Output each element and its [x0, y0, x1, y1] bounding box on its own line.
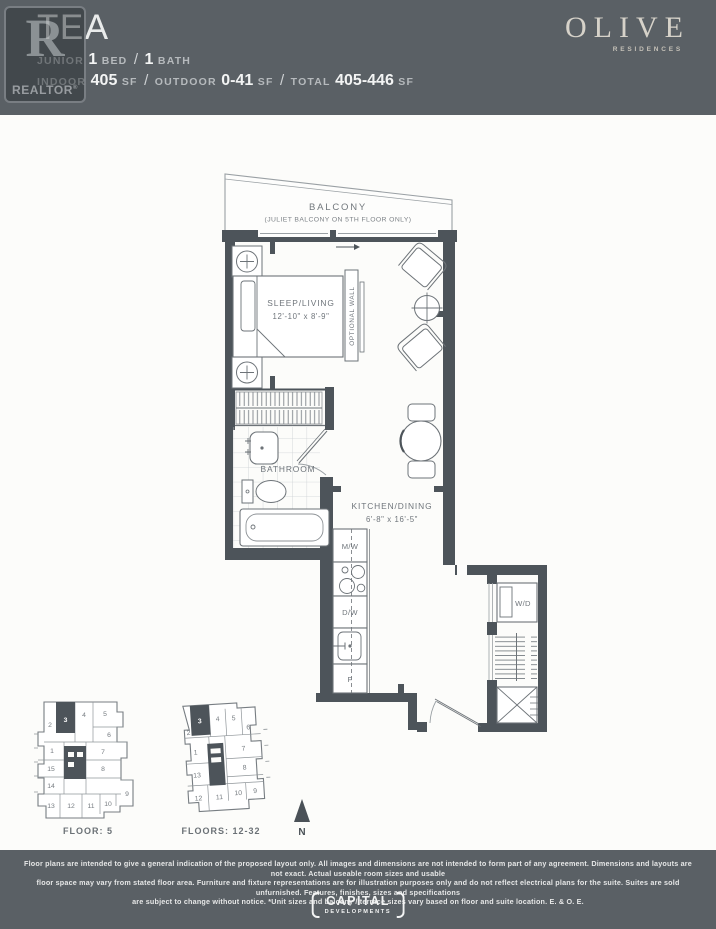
unit-number: 6	[107, 732, 111, 739]
outdoor-value: 0-41	[221, 72, 253, 89]
bedroom-closet	[235, 390, 325, 426]
unit-number-highlighted: 3	[64, 717, 68, 724]
logo-bracket-right-icon	[396, 892, 404, 918]
logo-capital: CAPITAL	[326, 895, 390, 908]
unit-number: 10	[104, 801, 112, 808]
spec-areas: INDOOR 405 SF / OUTDOOR 0-41 SF / TOTAL …	[37, 72, 414, 90]
header: R REALTOR® TEA JUNIOR 1 BED / 1 BATH IND…	[0, 0, 716, 115]
realtor-watermark-label: REALTOR®	[12, 83, 78, 97]
bath-count: 1	[145, 51, 154, 68]
unit-number: 8	[243, 765, 247, 772]
sleep-living-dims: 12'-10" x 8'-9"	[273, 312, 330, 321]
realtor-text: REALTOR	[12, 83, 73, 97]
slider-arrow-icon	[354, 244, 360, 250]
unit-number-highlighted: 3	[198, 718, 202, 725]
unit-number: 15	[47, 766, 55, 773]
keyplan-floors-12-32: 2 3 4 5 6 1 7 13 8 12 11 10 9 FLOORS: 12…	[181, 701, 272, 836]
toilet-bowl	[256, 481, 286, 503]
unit-number: 12	[67, 803, 75, 810]
fridge-label: F	[348, 675, 353, 684]
outdoor-label: OUTDOOR	[155, 76, 217, 88]
brand-name: OLIVE	[565, 13, 690, 43]
unit-number: 9	[125, 791, 129, 798]
floor-plan-svg: BALCONY (JULIET BALCONY ON 5TH FLOOR ONL…	[0, 115, 716, 850]
unit-number: 11	[87, 803, 94, 810]
dishwasher-label: D/W	[342, 608, 358, 617]
armchair-icon	[398, 241, 448, 290]
bed-count: 1	[88, 51, 97, 68]
kitchen-dims: 6'-8" x 16'-5"	[366, 515, 418, 524]
indoor-unit: SF	[122, 76, 138, 88]
logo-bracket-left-icon	[312, 892, 320, 918]
capital-developments-logo: CAPITAL DEVELOPMENTS	[312, 892, 405, 918]
pillow	[241, 281, 255, 331]
disclaimer-line: Floor plans are intended to give a gener…	[18, 859, 698, 878]
total-label: TOTAL	[291, 76, 331, 88]
optional-wall-label: OPTIONAL WALL	[349, 286, 356, 345]
unit-number: 8	[101, 766, 105, 773]
bed-label: BED	[102, 55, 128, 67]
dining-chair	[408, 404, 435, 421]
separator: /	[278, 72, 286, 89]
north-label: N	[298, 827, 305, 838]
unit-title: TEA	[37, 8, 414, 48]
dining-chair	[408, 461, 435, 478]
balcony: BALCONY (JULIET BALCONY ON 5TH FLOOR ONL…	[225, 174, 452, 232]
bathroom-label: BATHROOM	[261, 464, 316, 474]
balcony-note: (JULIET BALCONY ON 5TH FLOOR ONLY)	[265, 217, 412, 224]
realtor-r-logo: R	[26, 10, 65, 67]
outdoor-unit: SF	[258, 76, 274, 88]
total-unit: SF	[398, 76, 414, 88]
unit-number: 4	[216, 716, 220, 723]
unit-number: 14	[47, 783, 55, 790]
north-arrow-icon	[294, 799, 310, 822]
brand-logo: OLIVE RESIDENCES	[565, 13, 683, 53]
footer: Floor plans are intended to give a gener…	[0, 850, 716, 929]
unit-number: 7	[241, 746, 245, 753]
unit-number: 13	[193, 772, 201, 779]
indoor-value: 405	[91, 72, 118, 89]
balcony-label: BALCONY	[309, 202, 367, 213]
registered-mark: ®	[73, 85, 78, 91]
title-block: TEA JUNIOR 1 BED / 1 BATH INDOOR 405 SF …	[37, 8, 414, 90]
sleep-living-label: SLEEP/LIVING	[267, 298, 335, 308]
north-arrow: N	[294, 799, 310, 838]
brand-subtitle: RESIDENCES	[565, 46, 683, 53]
unit-number: 5	[232, 715, 236, 722]
realtor-watermark: R REALTOR®	[4, 6, 86, 103]
kitchen-label: KITCHEN/DINING	[352, 501, 433, 511]
unit-number: 1	[50, 748, 54, 755]
unit-number: 11	[216, 794, 224, 801]
unit-number: 4	[82, 712, 86, 719]
keyplan-floor5-label: FLOOR: 5	[63, 826, 113, 836]
armchair-icon	[396, 322, 446, 371]
unit-number: 2	[186, 730, 190, 737]
dining-table	[401, 421, 441, 461]
washer-dryer-label: W/D	[515, 599, 531, 608]
entry-door	[430, 699, 481, 727]
washer	[500, 587, 512, 617]
unit-number: 9	[253, 788, 257, 795]
plan-area: BALCONY (JULIET BALCONY ON 5TH FLOOR ONL…	[0, 115, 716, 850]
separator: /	[142, 72, 150, 89]
unit-number: 7	[101, 749, 105, 756]
unit-number: 13	[47, 803, 55, 810]
microwave-label: M/W	[342, 542, 359, 551]
toilet-tank	[242, 480, 253, 503]
bath-label: BATH	[158, 55, 191, 67]
unit-number: 5	[103, 711, 107, 718]
spec-beds-baths: JUNIOR 1 BED / 1 BATH	[37, 51, 414, 69]
floorplan-sheet: R REALTOR® TEA JUNIOR 1 BED / 1 BATH IND…	[0, 0, 716, 929]
unit-number: 2	[48, 722, 52, 729]
keyplan-floors-12-32-label: FLOORS: 12-32	[181, 826, 260, 836]
bathroom-sink	[250, 432, 278, 464]
separator: /	[132, 51, 140, 68]
unit-number: 12	[195, 795, 203, 802]
unit-number: 6	[246, 724, 250, 731]
logo-developments: DEVELOPMENTS	[325, 909, 392, 915]
bathroom: BATHROOM	[233, 427, 329, 548]
unit-number: 1	[194, 749, 198, 756]
unit-number: 10	[234, 790, 242, 797]
keyplan-floor-5: 2 3 4 5 6 1 7 15 8 14 13 12 11 10 9 FLOO…	[34, 702, 133, 836]
total-value: 405-446	[335, 72, 394, 89]
